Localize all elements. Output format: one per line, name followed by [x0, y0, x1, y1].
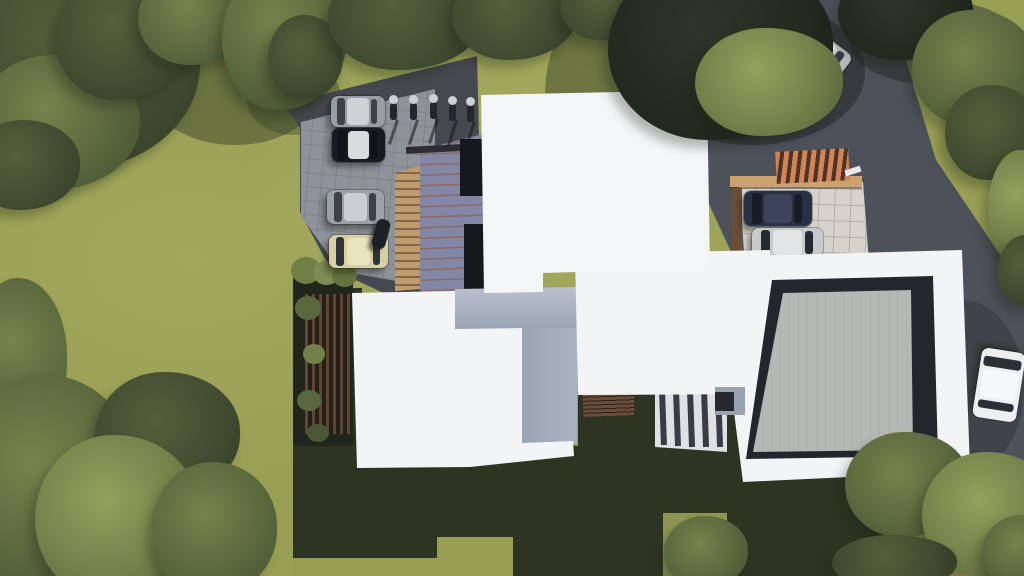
person-shadow	[447, 120, 458, 146]
tree	[664, 516, 748, 576]
person-body	[390, 103, 397, 120]
car-windshield	[334, 192, 342, 221]
person-figure	[428, 94, 440, 146]
car-windshield	[752, 193, 762, 223]
roof-step-dark	[715, 392, 734, 411]
car-rear-window	[805, 231, 814, 255]
car-roof	[348, 131, 369, 160]
person-body	[467, 105, 474, 122]
person-figure	[465, 97, 477, 149]
pergola-plant	[295, 296, 321, 320]
car-windshield	[338, 130, 345, 159]
car-windshield	[337, 98, 345, 125]
wood-walkway	[395, 166, 420, 291]
person-body	[449, 104, 456, 121]
person-figure	[408, 95, 420, 147]
car-roof	[764, 194, 791, 223]
carport-post	[732, 188, 742, 258]
person-head	[389, 95, 398, 104]
stair-slats	[775, 148, 850, 184]
car-windshield	[336, 237, 344, 265]
person-shadow	[428, 118, 439, 144]
car-rear-window	[369, 193, 376, 221]
aerial-render-scene	[0, 0, 1024, 576]
car-rear-window	[371, 99, 377, 124]
person-head	[466, 97, 475, 106]
person-head	[429, 94, 438, 103]
car-roof	[344, 193, 367, 222]
car-navy	[744, 191, 812, 226]
car-silver-1	[331, 96, 385, 127]
person-head	[409, 95, 418, 104]
car-rear-window	[371, 131, 377, 159]
person-shadow	[408, 119, 419, 145]
pergola-plant	[303, 344, 325, 364]
hedge-bush	[332, 265, 357, 287]
car-silver-2	[327, 190, 384, 224]
car-roof	[347, 238, 371, 266]
car-roof	[347, 98, 369, 124]
pergola-plant	[297, 390, 321, 411]
person-body	[430, 102, 437, 119]
car-black	[332, 128, 385, 162]
person-shadow	[465, 121, 476, 147]
car-rear-window	[794, 194, 802, 223]
person-body	[410, 103, 417, 120]
person-head	[448, 96, 457, 105]
car-roof	[979, 368, 1020, 401]
person-shadow	[388, 119, 399, 145]
person-figure	[447, 96, 459, 148]
person-figure	[388, 95, 400, 147]
shaded-wall	[520, 328, 577, 444]
pergola-plant	[307, 424, 329, 442]
car-roof	[773, 230, 801, 254]
shaded-wall	[455, 287, 577, 331]
